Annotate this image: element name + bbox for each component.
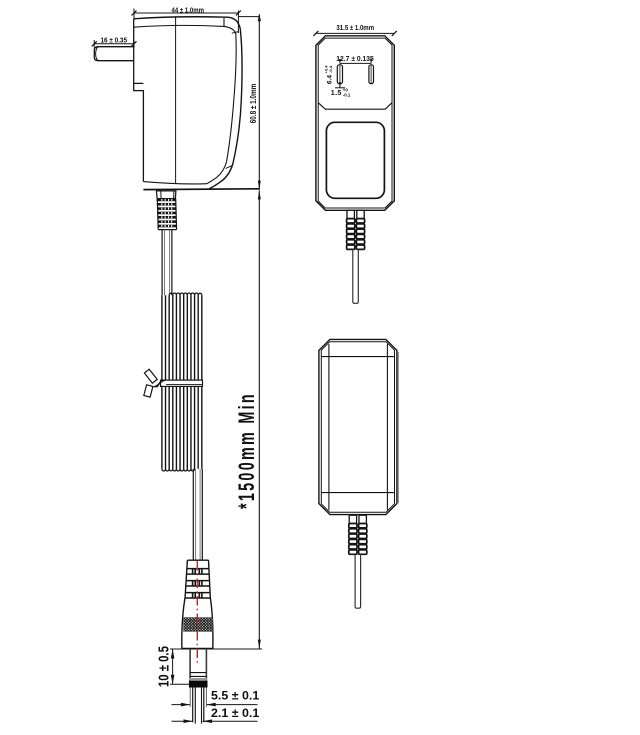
svg-text:2.1 ± 0.1: 2.1 ± 0.1 xyxy=(211,707,260,720)
svg-text:6.4: 6.4 xyxy=(326,75,333,84)
svg-text:-0.1: -0.1 xyxy=(343,92,351,97)
svg-text:5.5 ± 0.1: 5.5 ± 0.1 xyxy=(211,690,260,703)
svg-text:1.5: 1.5 xyxy=(331,88,342,97)
svg-text:31.5 ± 1.0mm: 31.5 ± 1.0mm xyxy=(336,23,374,32)
svg-text:16 ± 0.35: 16 ± 0.35 xyxy=(101,35,128,44)
svg-text:60.8 ± 1.0mm: 60.8 ± 1.0mm xyxy=(249,84,258,124)
svg-text:12.7 ± 0.135: 12.7 ± 0.135 xyxy=(336,54,374,63)
svg-text:44 ± 1.0mm: 44 ± 1.0mm xyxy=(172,5,205,14)
svg-text:*1500mm Min: *1500mm Min xyxy=(234,392,259,509)
svg-text:10 ± 0.5: 10 ± 0.5 xyxy=(155,646,172,687)
svg-text:-0.4: -0.4 xyxy=(328,65,333,73)
